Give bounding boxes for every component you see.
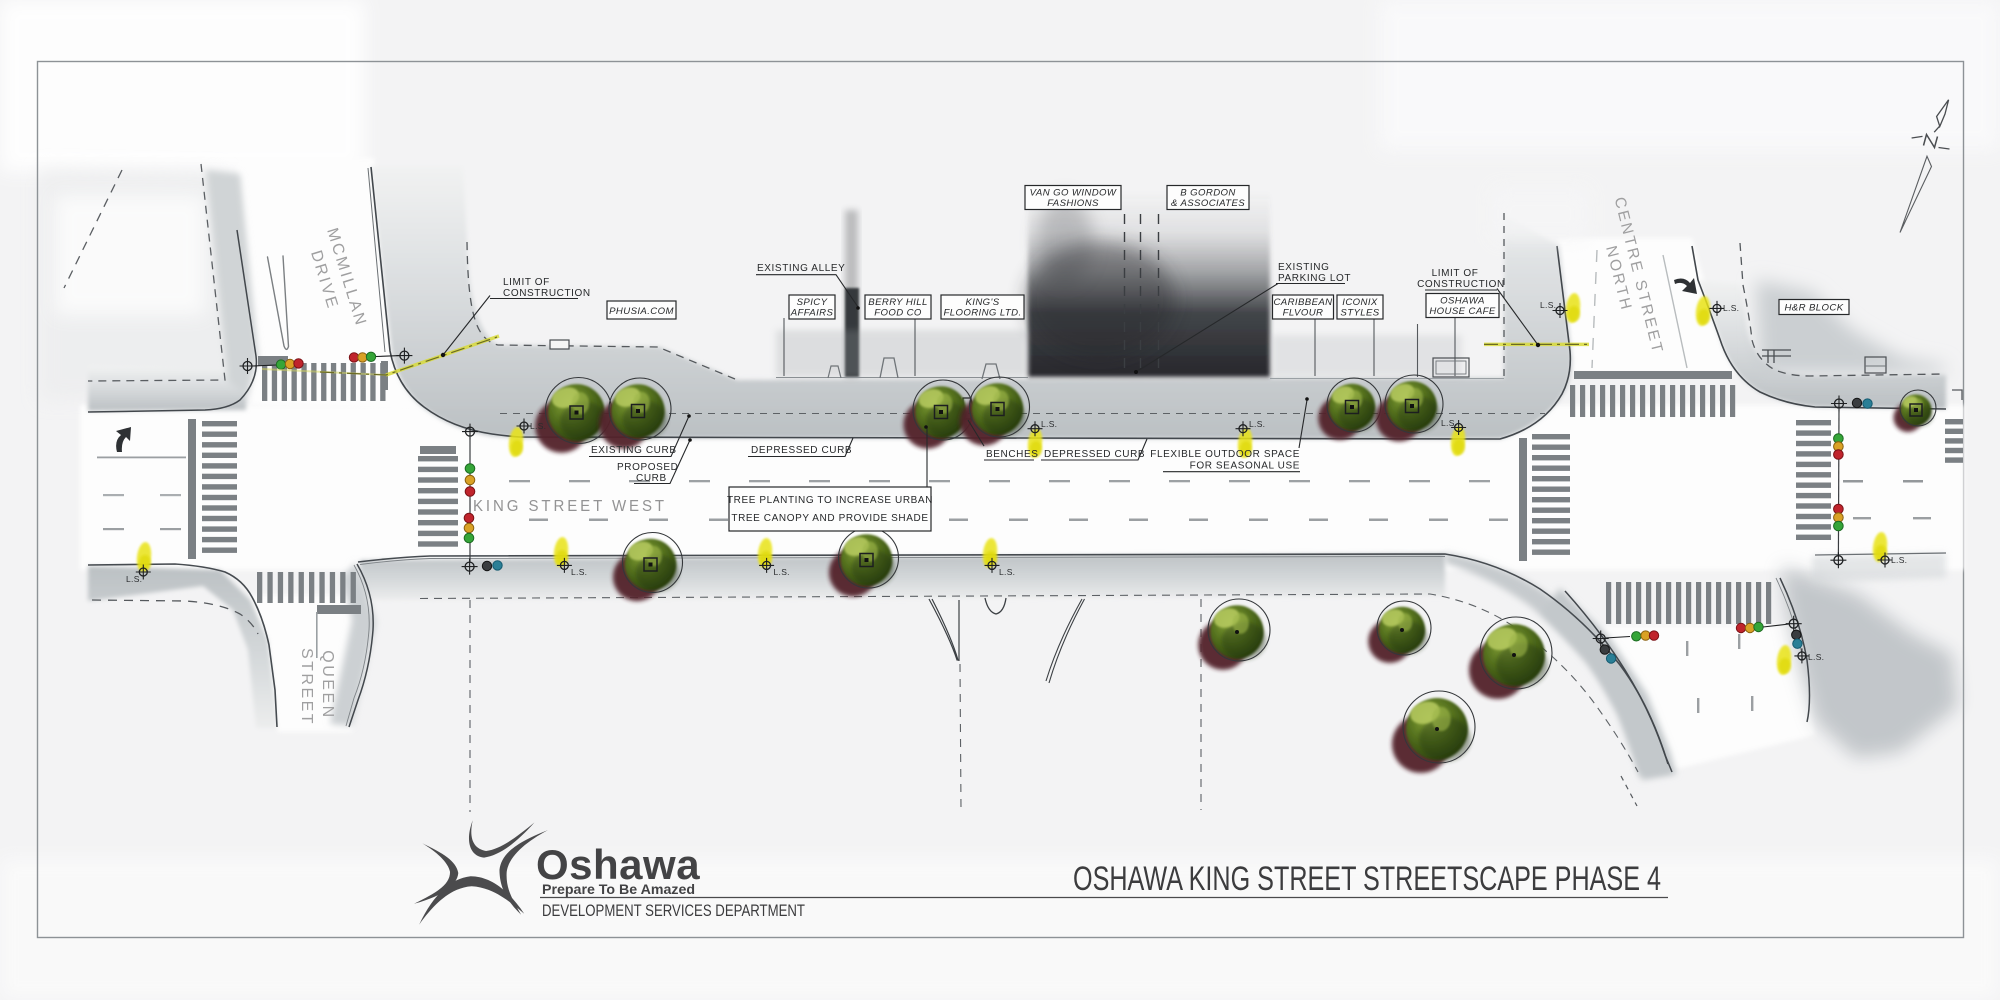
svg-text:L.S.: L.S.: [1723, 303, 1739, 313]
svg-text:DEPRESSED CURB: DEPRESSED CURB: [751, 445, 852, 456]
svg-text:L.S.: L.S.: [1808, 652, 1824, 662]
svg-text:ICONIX: ICONIX: [1342, 297, 1378, 308]
svg-text:EXISTING CURB: EXISTING CURB: [591, 445, 677, 456]
svg-text:L.S.: L.S.: [1540, 300, 1556, 310]
svg-text:QUEEN: QUEEN: [319, 650, 336, 719]
svg-text:FLEXIBLE OUTDOOR SPACE: FLEXIBLE OUTDOOR SPACE: [1150, 449, 1300, 460]
svg-text:BERRY HILL: BERRY HILL: [868, 297, 927, 308]
svg-text:H&R BLOCK: H&R BLOCK: [1784, 303, 1843, 314]
svg-text:L.S.: L.S.: [126, 574, 142, 584]
svg-text:L.S.: L.S.: [530, 421, 546, 431]
svg-text:SPICY: SPICY: [797, 297, 828, 308]
svg-text:FLVOUR: FLVOUR: [1283, 308, 1324, 319]
svg-text:L.S.: L.S.: [571, 567, 587, 577]
svg-text:CONSTRUCTION: CONSTRUCTION: [503, 288, 591, 299]
svg-text:& ASSOCIATES: & ASSOCIATES: [1171, 198, 1245, 209]
svg-text:KING'S: KING'S: [965, 297, 999, 308]
svg-text:AFFAIRS: AFFAIRS: [790, 308, 834, 319]
svg-text:HOUSE CAFE: HOUSE CAFE: [1429, 306, 1496, 317]
svg-text:FOOD CO: FOOD CO: [874, 308, 922, 319]
svg-text:OSHAWA KING STREET STREETSCA: OSHAWA KING STREET STREETSCAPE PHASE 4: [1073, 860, 1661, 898]
svg-text:L.S.: L.S.: [774, 567, 790, 577]
svg-text:LIMIT OF: LIMIT OF: [1432, 268, 1479, 279]
svg-text:L.S.: L.S.: [1249, 419, 1265, 429]
svg-text:PHUSIA.COM: PHUSIA.COM: [609, 306, 674, 317]
svg-text:OSHAWA: OSHAWA: [1440, 296, 1485, 307]
svg-text:CURB: CURB: [636, 473, 667, 484]
svg-text:L.S.: L.S.: [1041, 419, 1057, 429]
svg-text:PROPOSED: PROPOSED: [617, 462, 678, 473]
svg-text:L.S.: L.S.: [1441, 418, 1457, 428]
svg-text:VAN GO WINDOW: VAN GO WINDOW: [1030, 188, 1117, 199]
svg-text:TREE CANOPY AND PROVIDE SHADE: TREE CANOPY AND PROVIDE SHADE: [731, 513, 928, 524]
svg-text:STREET: STREET: [298, 648, 315, 726]
svg-text:LIMIT OF: LIMIT OF: [503, 277, 550, 288]
svg-text:CONSTRUCTION: CONSTRUCTION: [1417, 279, 1505, 290]
svg-text:CARIBBEAN: CARIBBEAN: [1273, 297, 1332, 308]
svg-text:Prepare To Be Amazed: Prepare To Be Amazed: [542, 881, 695, 897]
svg-text:EXISTING: EXISTING: [1278, 262, 1329, 273]
svg-text:BENCHES: BENCHES: [986, 449, 1039, 460]
svg-text:B GORDON: B GORDON: [1180, 188, 1235, 199]
svg-text:FLOORING LTD.: FLOORING LTD.: [943, 308, 1021, 319]
svg-text:KING STREET WEST: KING STREET WEST: [473, 498, 667, 515]
svg-text:PARKING LOT: PARKING LOT: [1278, 273, 1351, 284]
svg-text:DEVELOPMENT SERVICES DEPARTMEN: DEVELOPMENT SERVICES DEPARTMENT: [542, 902, 805, 920]
svg-text:FOR SEASONAL USE: FOR SEASONAL USE: [1190, 461, 1300, 472]
svg-text:FASHIONS: FASHIONS: [1047, 198, 1099, 209]
svg-text:TREE PLANTING TO INCREASE URBA: TREE PLANTING TO INCREASE URBAN: [727, 495, 933, 506]
svg-text:EXISTING ALLEY: EXISTING ALLEY: [757, 263, 845, 274]
svg-text:STYLES: STYLES: [1340, 308, 1379, 319]
svg-text:L.S.: L.S.: [999, 567, 1015, 577]
svg-text:DEPRESSED CURB: DEPRESSED CURB: [1044, 449, 1145, 460]
svg-text:L.S.: L.S.: [1891, 555, 1907, 565]
